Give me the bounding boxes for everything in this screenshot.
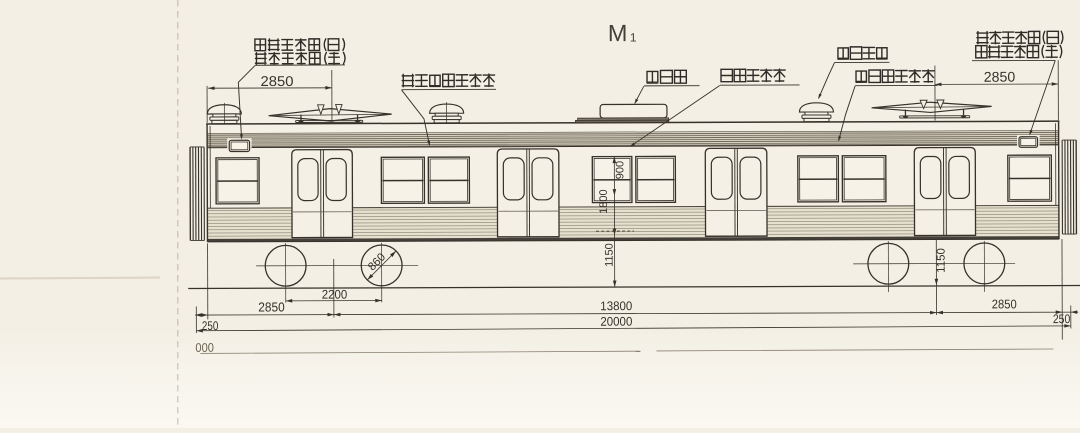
svg-text:1150: 1150: [604, 243, 616, 267]
svg-text:13800: 13800: [600, 299, 632, 313]
svg-text:1: 1: [630, 30, 637, 44]
svg-text:M: M: [608, 20, 628, 46]
svg-text:2850: 2850: [984, 70, 1016, 86]
svg-text:900: 900: [614, 161, 626, 179]
svg-text:1800: 1800: [598, 189, 610, 214]
svg-text:2850: 2850: [992, 297, 1017, 311]
svg-text:2850: 2850: [261, 74, 294, 90]
svg-text:1150: 1150: [936, 248, 948, 273]
svg-text:2850: 2850: [258, 299, 285, 314]
svg-text:20000: 20000: [600, 315, 632, 329]
svg-text:000: 000: [195, 341, 214, 355]
svg-text:2200: 2200: [322, 288, 348, 302]
svg-text:250: 250: [1053, 312, 1071, 326]
